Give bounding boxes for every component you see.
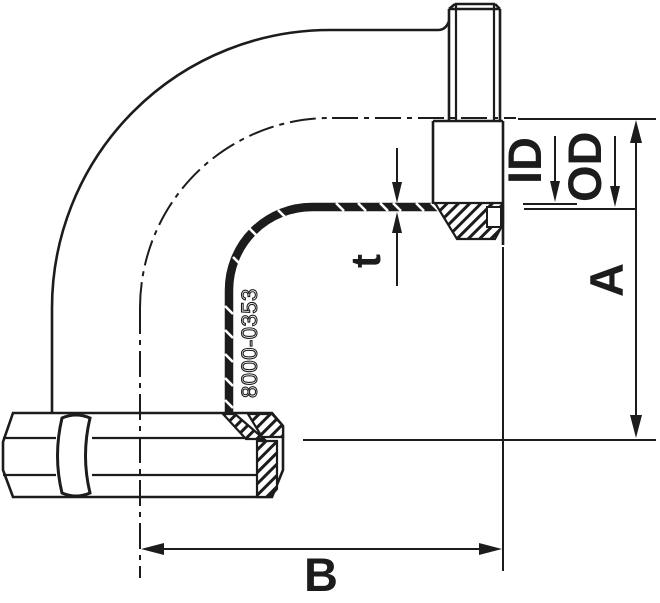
- drawing-canvas: 8000-0353 t ID OD A B: [0, 0, 660, 603]
- dim-OD-label: OD: [558, 132, 611, 203]
- dim-B-label: B: [304, 548, 338, 601]
- background: [0, 0, 660, 603]
- nut-facet-band: [58, 415, 91, 496]
- elbow-fitting-drawing: 8000-0353 t ID OD A B: [0, 0, 660, 603]
- nut-wall-hatch: [257, 441, 277, 497]
- dim-A-label: A: [580, 263, 633, 297]
- part-number-label: 8000-0353: [237, 288, 262, 398]
- dim-t-label: t: [342, 254, 389, 268]
- dim-ID-label: ID: [498, 137, 551, 184]
- body-section-notch: [487, 207, 501, 227]
